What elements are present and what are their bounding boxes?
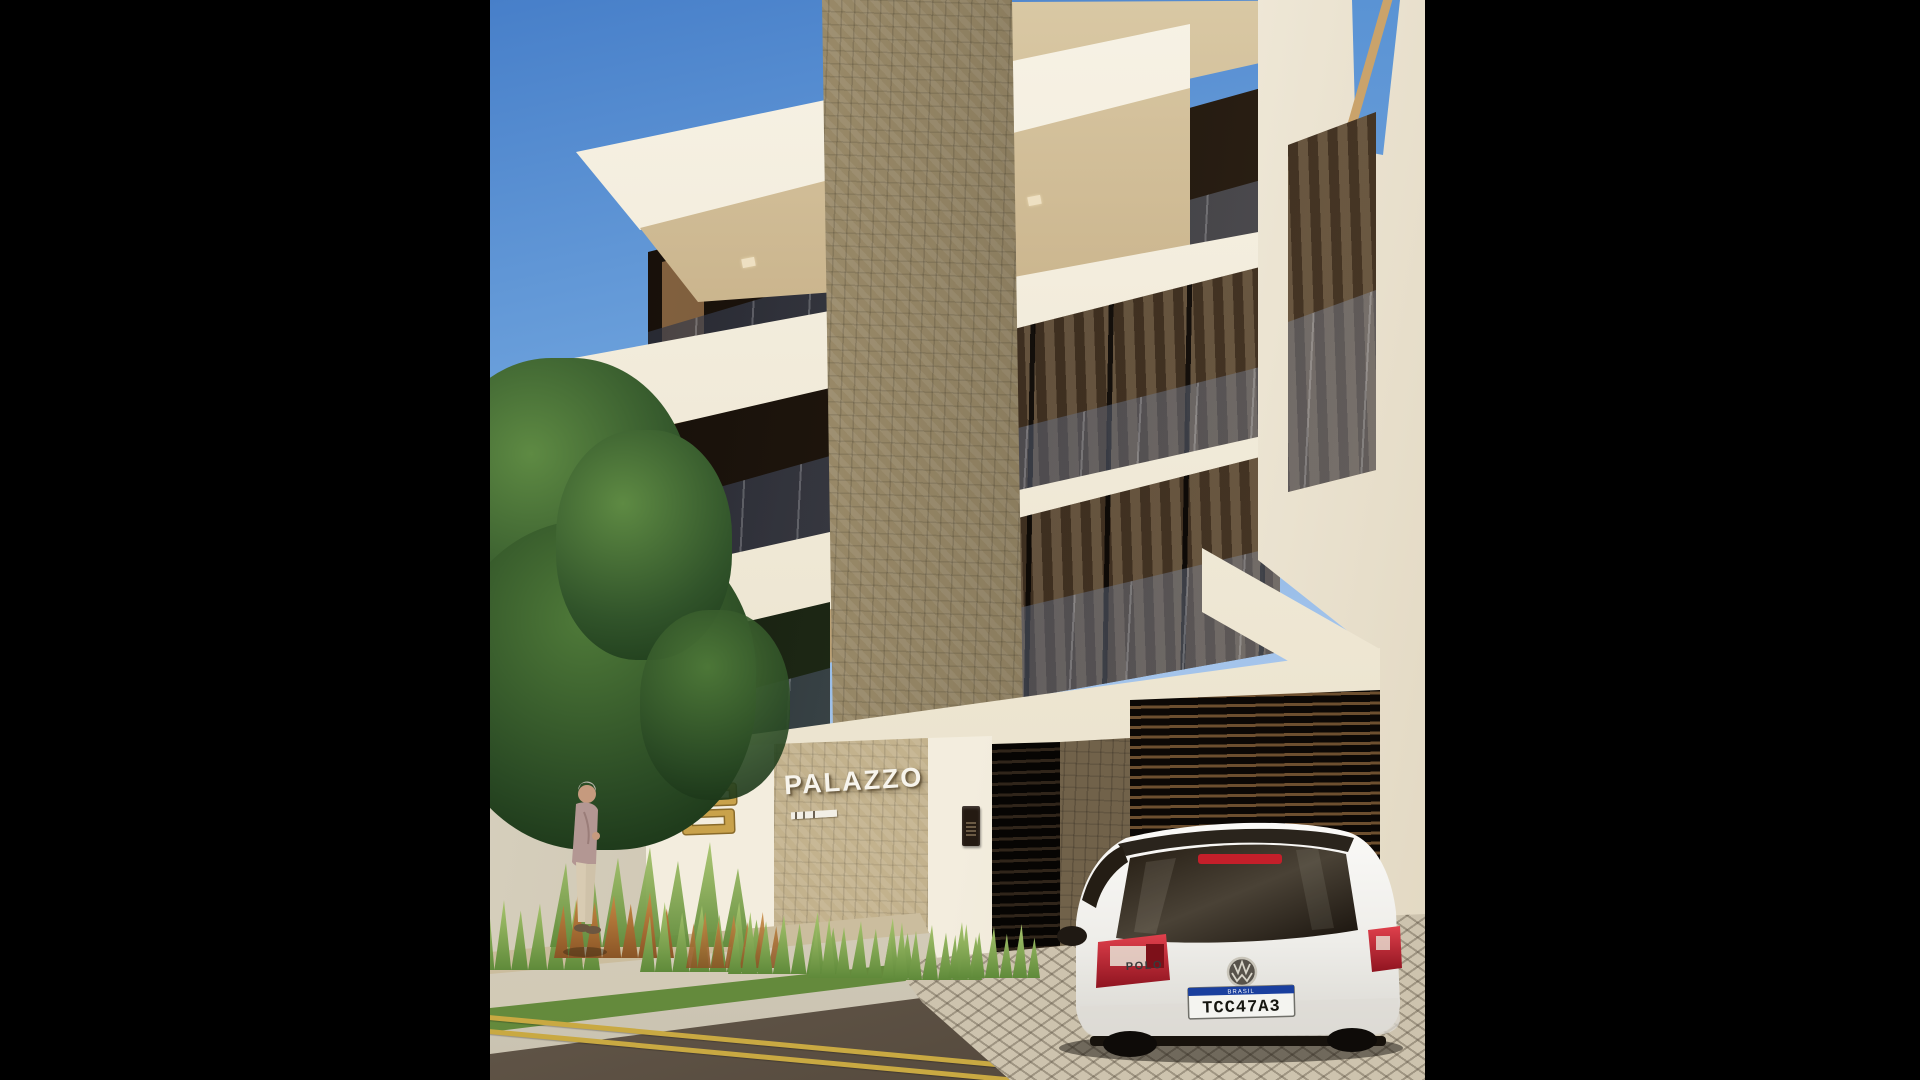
license-plate: BRASIL TCC47A3	[1188, 985, 1295, 1019]
vw-roundel-icon	[1228, 958, 1256, 986]
wheel-left	[1103, 1031, 1157, 1057]
plate-number: TCC47A3	[1202, 998, 1281, 1019]
plate-band-text: BRASIL	[1227, 989, 1254, 996]
letterbox-right	[1425, 0, 1920, 1080]
render-stage: PALAZZO	[0, 0, 1920, 1080]
architectural-render: PALAZZO	[490, 0, 1425, 1080]
side-mirror	[1057, 926, 1087, 946]
wheel-right	[1327, 1028, 1377, 1052]
tree	[640, 610, 790, 800]
letterbox-left	[0, 0, 490, 1080]
intercom-panel	[962, 806, 980, 846]
car: POLO BRASIL TCC47A3	[1046, 792, 1410, 1068]
intercom-keys	[966, 820, 976, 836]
person	[552, 778, 616, 960]
polo-badge: POLO	[1126, 959, 1164, 973]
third-brake-light	[1198, 854, 1282, 864]
